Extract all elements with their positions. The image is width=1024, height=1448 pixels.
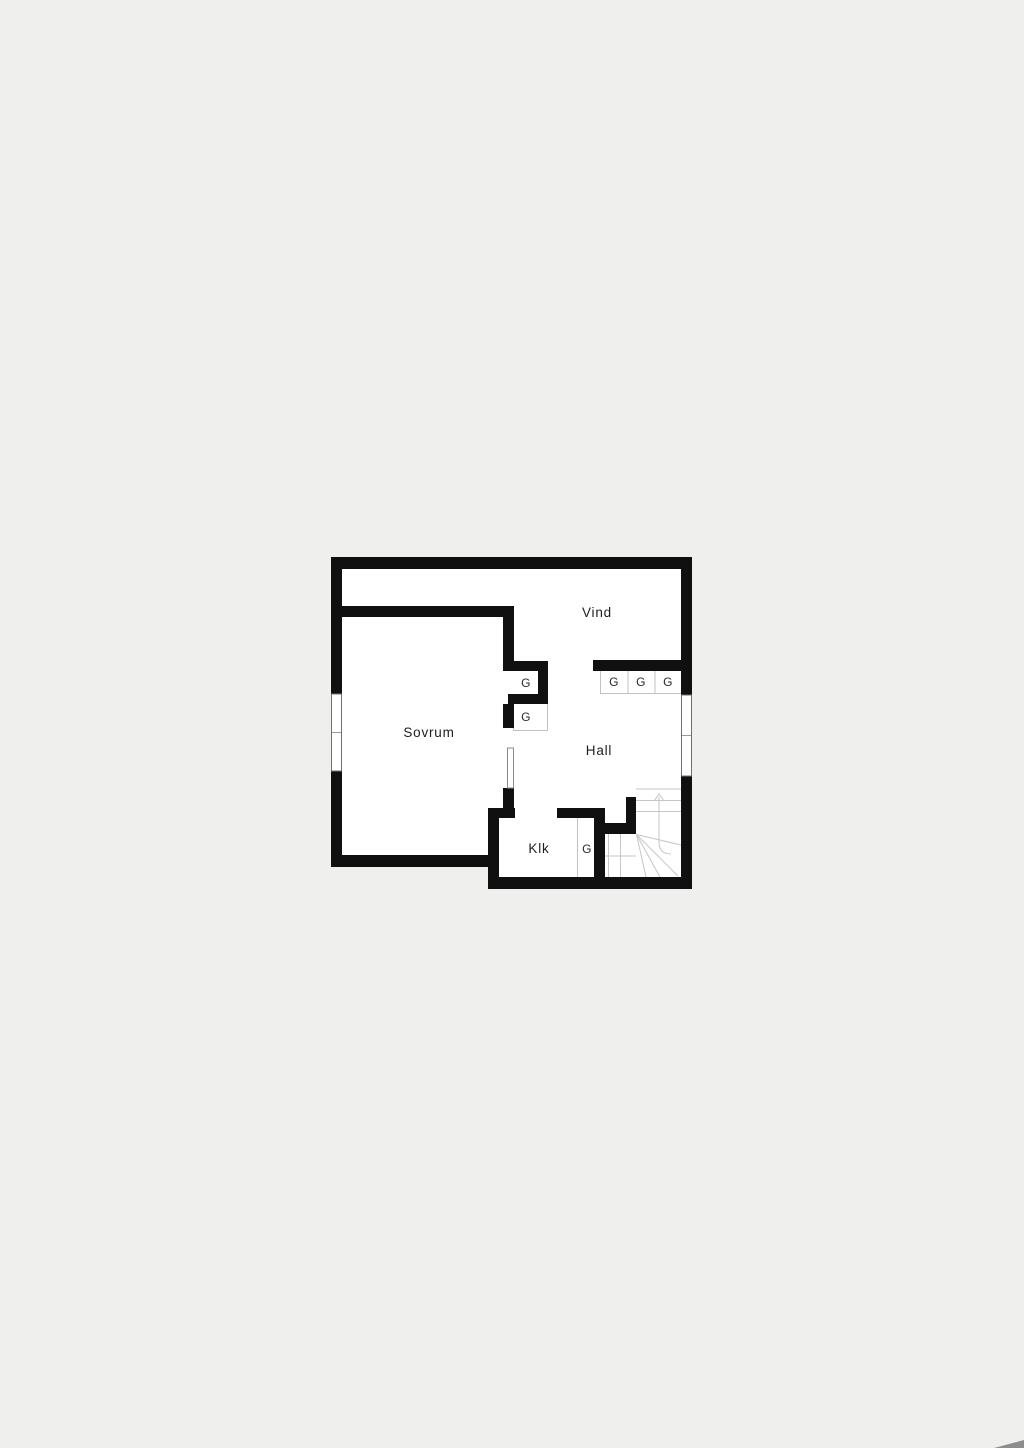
room-label-sovrum: Sovrum	[403, 725, 454, 740]
page-corner-wedge	[994, 1440, 1024, 1448]
wall-outer-right-lower	[681, 776, 692, 889]
room-label-hall: Hall	[586, 743, 612, 758]
wardrobe-label: G	[663, 675, 673, 689]
wall-klk-top-left	[488, 808, 515, 818]
floor-plan-page: Vind Sovrum Hall Klk G G G G G G	[0, 0, 1024, 1448]
wall-door-jamb	[503, 788, 514, 810]
wardrobe-label: G	[582, 842, 592, 856]
wall-outer-bottom-left	[331, 855, 498, 867]
wardrobe-label: G	[609, 675, 619, 689]
wall-sovrum-right-mid	[503, 704, 514, 728]
wall-klk-right	[594, 808, 605, 889]
wall-outer-right-upper	[681, 557, 692, 695]
door-leaf-sovrum	[508, 748, 514, 788]
wall-outer-top	[331, 557, 692, 569]
wall-outer-bottom-right	[488, 877, 692, 889]
wall-klk-left	[488, 808, 499, 889]
wall-sovrum-top	[342, 606, 514, 617]
wall-sovrum-right-upper	[503, 606, 514, 670]
wall-closet-stub-bottom	[508, 694, 548, 704]
wardrobe-label: G	[521, 710, 531, 724]
wall-outer-left-lower	[331, 771, 342, 867]
wardrobe-label: G	[636, 675, 646, 689]
wardrobe-label: G	[521, 676, 531, 690]
room-label-klk: Klk	[528, 841, 549, 856]
wall-stair-vertical	[626, 797, 636, 834]
floor-plan-drawing: Vind Sovrum Hall Klk G G G G G G	[0, 0, 1024, 1448]
wall-outer-left-upper	[331, 557, 342, 694]
room-label-vind: Vind	[582, 605, 612, 620]
wall-vind-hall	[593, 660, 681, 671]
